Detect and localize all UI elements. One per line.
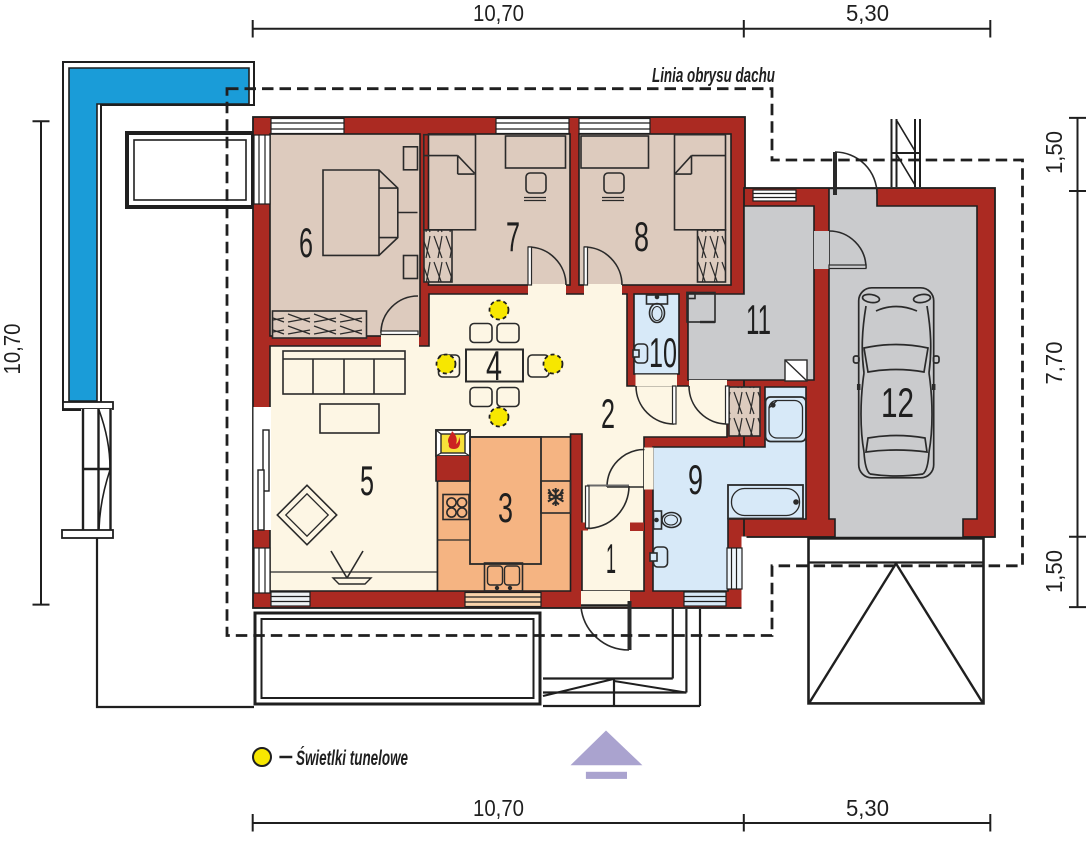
svg-text:4: 4 <box>486 342 502 389</box>
svg-text:5,30: 5,30 <box>846 0 889 26</box>
svg-text:7,70: 7,70 <box>1041 342 1067 385</box>
svg-text:7: 7 <box>506 213 520 260</box>
svg-text:10,70: 10,70 <box>473 0 524 26</box>
svg-text:11: 11 <box>746 296 771 343</box>
svg-text:5: 5 <box>360 457 374 504</box>
svg-text:Świetlki tunelowe: Świetlki tunelowe <box>296 746 408 770</box>
svg-text:12: 12 <box>881 379 914 426</box>
svg-text:5,30: 5,30 <box>846 795 889 821</box>
svg-text:6: 6 <box>299 219 313 266</box>
svg-text:10,70: 10,70 <box>0 324 25 375</box>
svg-text:8: 8 <box>634 213 649 260</box>
svg-text:9: 9 <box>688 456 703 503</box>
svg-text:Linia obrysu dachu: Linia obrysu dachu <box>652 65 775 87</box>
svg-text:3: 3 <box>498 484 513 531</box>
svg-text:10,70: 10,70 <box>473 795 524 821</box>
svg-text:1,50: 1,50 <box>1041 131 1067 174</box>
svg-text:2: 2 <box>601 390 615 437</box>
svg-text:1,50: 1,50 <box>1041 550 1067 593</box>
svg-text:1: 1 <box>606 535 616 582</box>
svg-text:10: 10 <box>649 329 677 376</box>
